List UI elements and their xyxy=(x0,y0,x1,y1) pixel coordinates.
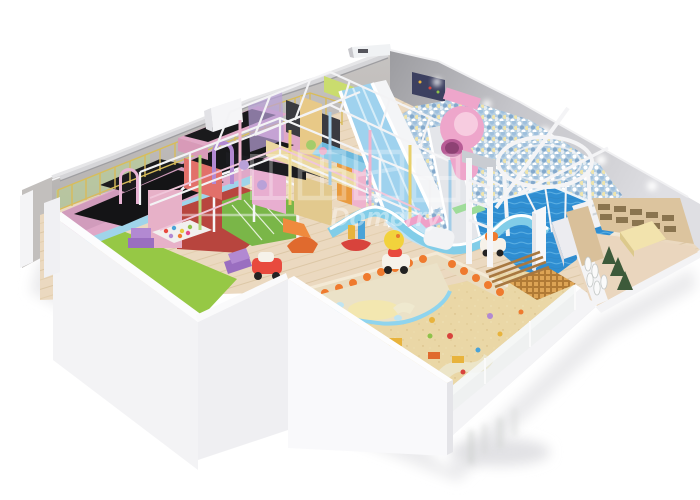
svg-text:Domerry: Domerry xyxy=(330,202,443,232)
